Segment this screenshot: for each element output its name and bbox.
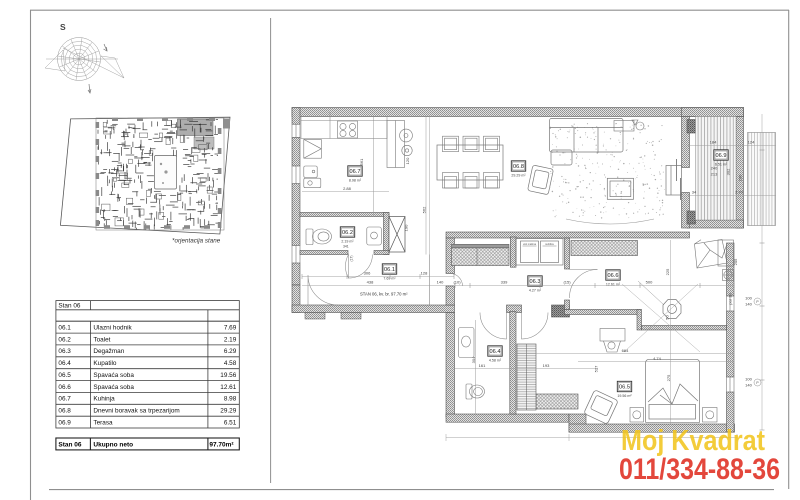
svg-text:2.19: 2.19 [224, 336, 237, 343]
svg-text:S: S [60, 22, 66, 32]
svg-text:4.58: 4.58 [224, 360, 237, 367]
svg-text:06.1: 06.1 [384, 267, 395, 273]
svg-text:06.5: 06.5 [619, 385, 630, 391]
svg-text:230: 230 [738, 174, 743, 181]
svg-text:(15): (15) [563, 279, 571, 284]
svg-text:Degažman: Degažman [93, 348, 124, 355]
svg-text:011/334-88-36: 011/334-88-36 [619, 453, 780, 486]
svg-text:Dnevni boravak sa trpezarijom: Dnevni boravak sa trpezarijom [93, 408, 179, 415]
svg-text:06.8: 06.8 [58, 408, 71, 415]
svg-text:Ukupno neto: Ukupno neto [93, 442, 133, 449]
svg-text:140: 140 [745, 302, 752, 307]
svg-text:339: 339 [501, 279, 508, 284]
svg-text:184: 184 [710, 140, 717, 145]
svg-text:341: 341 [343, 245, 349, 249]
svg-text:664: 664 [622, 348, 629, 353]
svg-text:19.56 m²: 19.56 m² [617, 394, 632, 398]
svg-text:06.2: 06.2 [342, 230, 353, 236]
svg-text:Ulazni hodnik: Ulazni hodnik [93, 325, 132, 332]
svg-text:4.27 m²: 4.27 m² [529, 289, 542, 293]
svg-text:sušilica: sušilica [545, 242, 554, 246]
svg-text:34: 34 [692, 190, 697, 195]
svg-text:527: 527 [594, 365, 599, 372]
svg-text:12.61 m²: 12.61 m² [606, 283, 621, 287]
svg-text:128: 128 [421, 270, 428, 275]
svg-text:438: 438 [367, 279, 374, 284]
svg-text:06.4: 06.4 [58, 360, 71, 367]
svg-text:06.9: 06.9 [716, 153, 727, 159]
svg-text:4.74: 4.74 [653, 356, 662, 361]
svg-text:06.3: 06.3 [58, 348, 71, 355]
svg-text:Stan 06: Stan 06 [58, 442, 82, 449]
svg-text:(17): (17) [350, 255, 354, 261]
svg-text:Stan 06: Stan 06 [58, 302, 80, 309]
svg-text:Spavaća soba: Spavaća soba [93, 384, 134, 391]
svg-text:veš mašina: veš mašina [523, 242, 537, 246]
svg-text:213: 213 [711, 172, 718, 177]
svg-text:120: 120 [405, 157, 410, 164]
svg-text:29.29: 29.29 [220, 408, 236, 415]
svg-text:100: 100 [745, 296, 752, 301]
svg-text:2.70: 2.70 [735, 190, 744, 195]
svg-text:8.98 m²: 8.98 m² [349, 179, 362, 183]
svg-text:par 30: par 30 [728, 293, 733, 305]
svg-text:205: 205 [733, 258, 738, 265]
svg-text:161: 161 [479, 363, 486, 368]
svg-text:275: 275 [666, 374, 671, 381]
svg-text:190: 190 [404, 224, 409, 231]
svg-text:06.1: 06.1 [58, 325, 71, 332]
svg-text:8.98: 8.98 [224, 396, 237, 403]
svg-text:7.69: 7.69 [224, 325, 237, 332]
svg-text:06.7: 06.7 [58, 396, 71, 403]
svg-text:140: 140 [437, 279, 444, 284]
svg-text:2.19 m²: 2.19 m² [341, 240, 354, 244]
svg-text:06.9: 06.9 [58, 420, 71, 427]
svg-text:561: 561 [359, 158, 364, 165]
svg-text:Toalet: Toalet [93, 336, 110, 343]
svg-text:06.6: 06.6 [58, 384, 71, 391]
svg-text:6.51: 6.51 [224, 420, 237, 427]
svg-text:STAN 06, kv. br. 97.70 m²: STAN 06, kv. br. 97.70 m² [360, 291, 408, 296]
svg-text:302: 302 [726, 168, 731, 175]
svg-text:97.70m²: 97.70m² [209, 442, 234, 449]
svg-text:06.7: 06.7 [350, 169, 361, 175]
svg-text:06.3: 06.3 [530, 279, 541, 285]
svg-text:29.29 m²: 29.29 m² [511, 174, 526, 178]
svg-text:*orjentacija stane: *orjentacija stane [172, 238, 221, 245]
svg-text:Terasa: Terasa [93, 420, 113, 427]
svg-text:06.4: 06.4 [490, 349, 501, 355]
svg-text:Kuhinja: Kuhinja [93, 396, 115, 403]
svg-text:100: 100 [745, 377, 752, 382]
svg-text:562: 562 [422, 206, 427, 213]
svg-text:4.58 m²: 4.58 m² [489, 359, 502, 363]
svg-text:193: 193 [543, 363, 550, 368]
svg-text:304: 304 [471, 356, 476, 363]
svg-text:225: 225 [665, 268, 670, 275]
svg-text:06.8: 06.8 [513, 164, 524, 170]
svg-text:Kupatilo: Kupatilo [93, 360, 117, 367]
svg-text:Spavaća soba: Spavaća soba [93, 372, 134, 379]
svg-text:500: 500 [646, 279, 653, 284]
svg-text:06.6: 06.6 [608, 273, 619, 279]
svg-text:19.56: 19.56 [220, 372, 236, 379]
svg-text:240: 240 [711, 166, 718, 171]
svg-text:50: 50 [665, 315, 670, 320]
svg-text:6.29: 6.29 [224, 348, 237, 355]
svg-text:12.61: 12.61 [220, 384, 236, 391]
svg-text:140: 140 [745, 383, 752, 388]
svg-text:124: 124 [748, 140, 755, 145]
svg-text:306: 306 [364, 270, 371, 275]
svg-text:06.2: 06.2 [58, 336, 71, 343]
svg-text:(10): (10) [453, 279, 461, 284]
svg-text:06.5: 06.5 [58, 372, 71, 379]
svg-text:2.88: 2.88 [343, 186, 352, 191]
